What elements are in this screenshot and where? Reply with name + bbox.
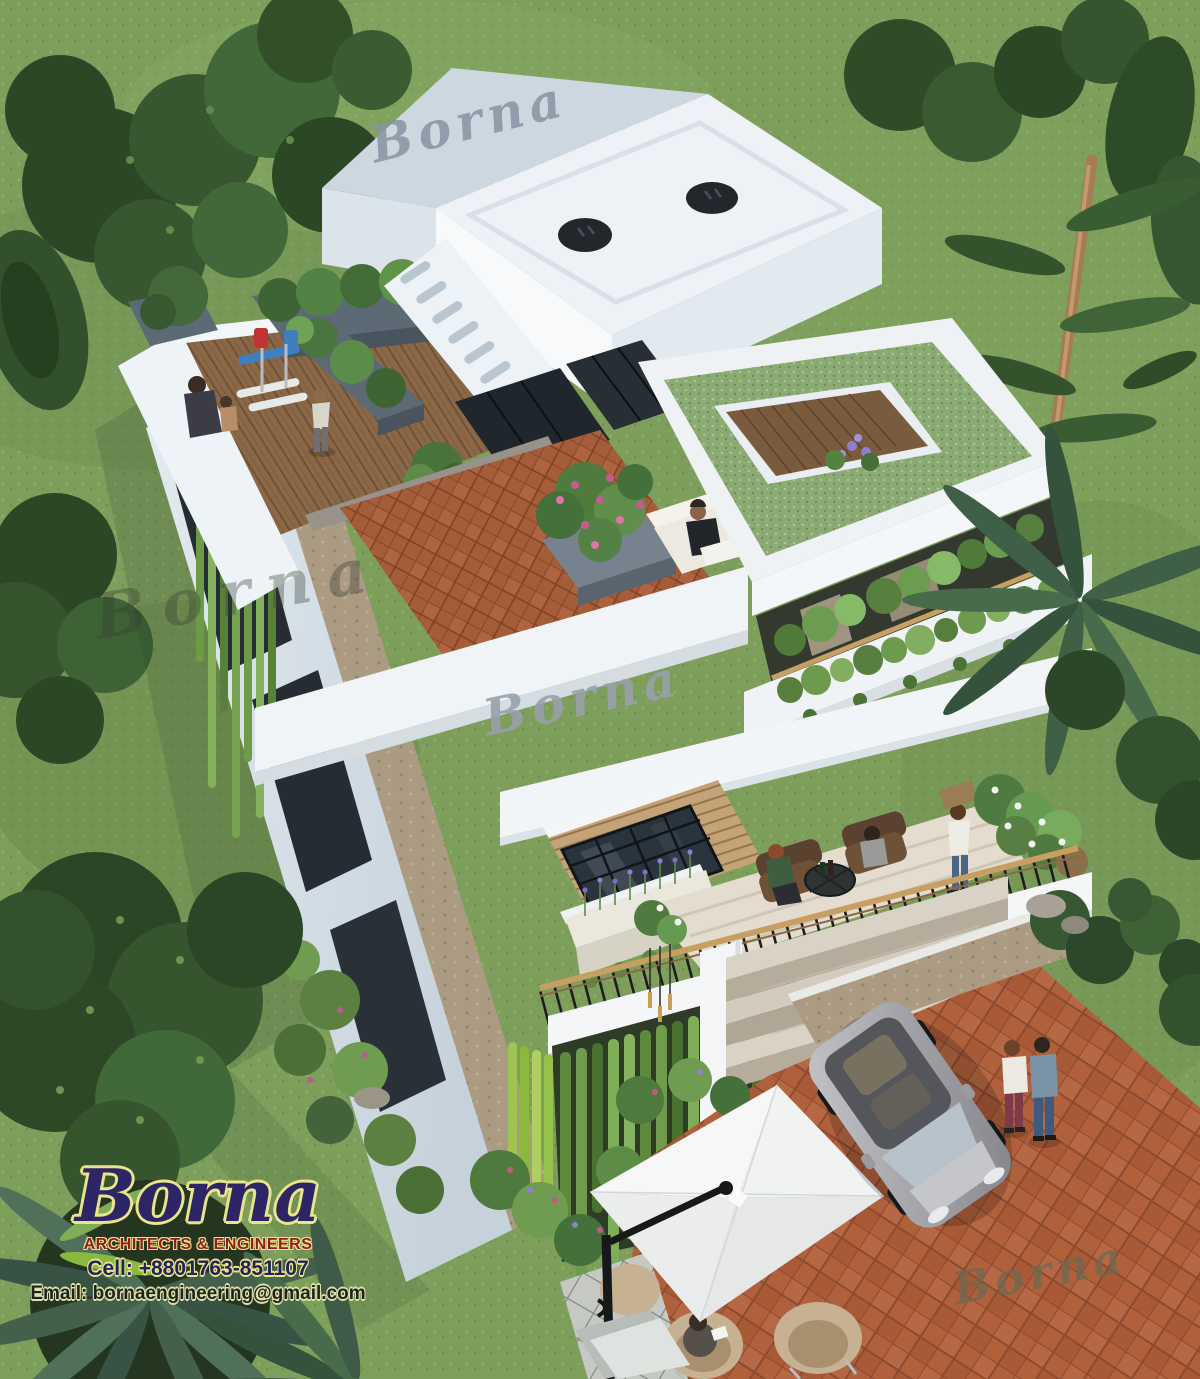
rock bbox=[1061, 916, 1089, 934]
logo-phone: Cell: +8801763-851107 bbox=[26, 1257, 370, 1281]
rock bbox=[1026, 894, 1066, 918]
logo-brand: Borna bbox=[26, 1158, 370, 1234]
roof-vent bbox=[686, 182, 738, 214]
logo-tagline: ARCHITECTS & ENGINEERS bbox=[26, 1236, 370, 1254]
roof-vent bbox=[558, 218, 612, 252]
rock bbox=[354, 1087, 390, 1109]
logo-block: Borna ARCHITECTS & ENGINEERS Cell: +8801… bbox=[26, 1158, 370, 1305]
architectural-render: Borna Borna Borna Borna Borna ARCHITECTS… bbox=[0, 0, 1200, 1379]
logo-email: Email: bornaengineering@gmail.com bbox=[26, 1283, 370, 1305]
